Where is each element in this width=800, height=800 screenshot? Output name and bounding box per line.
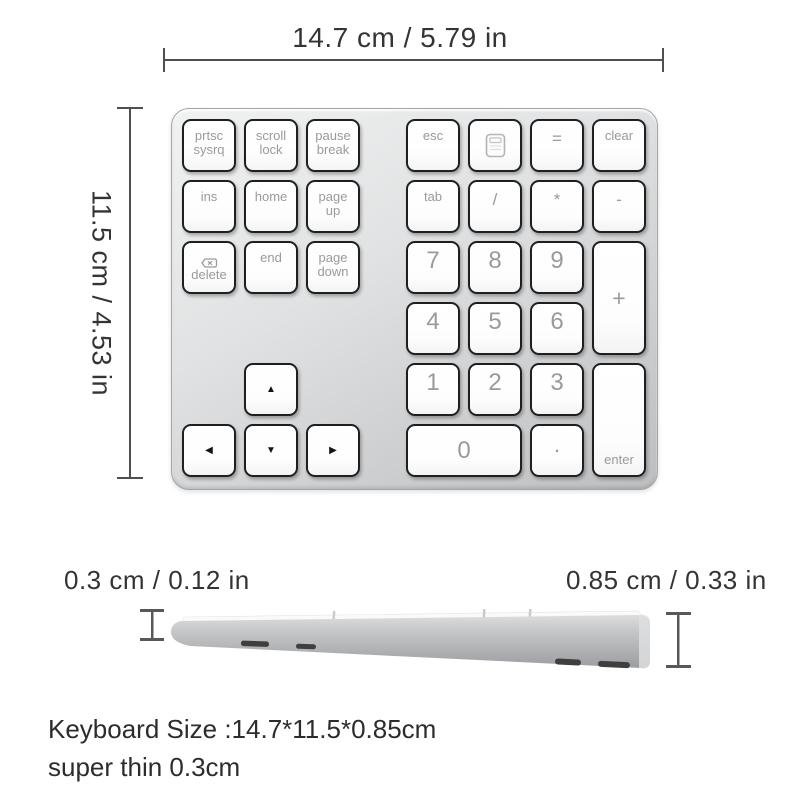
key-label: 8 xyxy=(488,247,501,275)
front-thickness-marker xyxy=(140,609,164,641)
rear-thickness-dimension-label: 0.85 cm / 0.33 in xyxy=(566,565,767,596)
key-delete: delete xyxy=(182,241,236,294)
key-tab: tab xyxy=(406,180,460,233)
delete-forward-icon xyxy=(201,258,218,268)
size-caption: Keyboard Size :14.7*11.5*0.85cm super th… xyxy=(48,710,436,786)
key-enter: enter xyxy=(592,363,646,477)
key-label: 0 xyxy=(457,437,470,465)
key-end: end xyxy=(244,241,298,294)
key-8: 8 xyxy=(468,241,522,294)
key-label: home xyxy=(255,190,288,204)
key-5: 5 xyxy=(468,302,522,355)
key-arrow-down: ▼ xyxy=(244,424,298,477)
key-arrow-right: ▶ xyxy=(306,424,360,477)
keypad: prtsc sysrqscroll lockpause breakesc=cle… xyxy=(171,108,658,490)
key-pause-break: pause break xyxy=(306,119,360,172)
key-label: / xyxy=(493,191,498,209)
left-height-dimension-label: 11.5 cm / 4.53 in xyxy=(86,190,117,396)
key-page-down: page down xyxy=(306,241,360,294)
key-label: tab xyxy=(424,190,442,204)
key-label: clear xyxy=(605,129,633,143)
key-label: - xyxy=(616,191,622,209)
key-4: 4 xyxy=(406,302,460,355)
top-dimension-left-tick xyxy=(163,48,165,72)
key-label: 7 xyxy=(426,247,439,275)
key-label: ▼ xyxy=(266,445,276,456)
key-period: . xyxy=(530,424,584,477)
key-label: 9 xyxy=(550,247,563,275)
key-label: end xyxy=(260,251,282,265)
key-label: esc xyxy=(423,129,443,143)
key-label: 1 xyxy=(426,369,439,397)
key-page-up: page up xyxy=(306,180,360,233)
keyboard-profile xyxy=(171,609,650,668)
key-esc: esc xyxy=(406,119,460,172)
key-label: ▶ xyxy=(329,445,337,456)
key-label: = xyxy=(552,130,562,148)
key-label: + xyxy=(612,285,625,312)
key-ins: ins xyxy=(182,180,236,233)
key-prtsc-sysrq: prtsc sysrq xyxy=(182,119,236,172)
top-width-dimension-line xyxy=(164,59,664,61)
key-arrow-up: ▲ xyxy=(244,363,298,416)
key-9: 9 xyxy=(530,241,584,294)
key-label: ins xyxy=(201,190,218,204)
top-dimension-right-tick xyxy=(662,48,664,72)
calculator-icon xyxy=(485,133,506,158)
key-6: 6 xyxy=(530,302,584,355)
keyboard-side-view xyxy=(138,596,698,680)
key-label: ◀ xyxy=(205,445,213,456)
key-label: ▲ xyxy=(266,384,276,395)
key-plus: + xyxy=(592,241,646,355)
key-multiply: * xyxy=(530,180,584,233)
key-label: 4 xyxy=(426,308,439,336)
key-label: 2 xyxy=(488,369,501,397)
left-dimension-top-tick xyxy=(117,107,143,109)
key-label: 5 xyxy=(488,308,501,336)
key-label: * xyxy=(554,191,561,209)
key-label: scroll lock xyxy=(256,129,286,157)
key-minus: - xyxy=(592,180,646,233)
key-home: home xyxy=(244,180,298,233)
key-clear: clear xyxy=(592,119,646,172)
key-label: pause break xyxy=(315,129,350,157)
size-caption-line2: super thin 0.3cm xyxy=(48,748,436,786)
key-0: 0 xyxy=(406,424,522,477)
front-thickness-dimension-label: 0.3 cm / 0.12 in xyxy=(64,565,250,596)
key-equals: = xyxy=(530,119,584,172)
key-2: 2 xyxy=(468,363,522,416)
left-dimension-bottom-tick xyxy=(117,477,143,479)
key-7: 7 xyxy=(406,241,460,294)
key-label: delete xyxy=(191,268,226,282)
rear-thickness-marker xyxy=(666,612,691,668)
key-label: 3 xyxy=(550,369,563,397)
top-width-dimension-label: 14.7 cm / 5.79 in xyxy=(164,22,636,54)
key-label: 6 xyxy=(550,308,563,336)
key-calculator xyxy=(468,119,522,172)
key-label: . xyxy=(554,432,560,458)
key-divide: / xyxy=(468,180,522,233)
key-arrow-left: ◀ xyxy=(182,424,236,477)
key-3: 3 xyxy=(530,363,584,416)
key-1: 1 xyxy=(406,363,460,416)
size-caption-line1: Keyboard Size :14.7*11.5*0.85cm xyxy=(48,710,436,748)
key-label: prtsc sysrq xyxy=(193,129,224,157)
key-scroll-lock: scroll lock xyxy=(244,119,298,172)
left-height-dimension-line xyxy=(129,108,131,479)
key-label: page down xyxy=(317,251,348,279)
key-label: enter xyxy=(604,452,634,467)
key-label: page up xyxy=(319,190,348,218)
side-right-cap xyxy=(639,615,650,668)
